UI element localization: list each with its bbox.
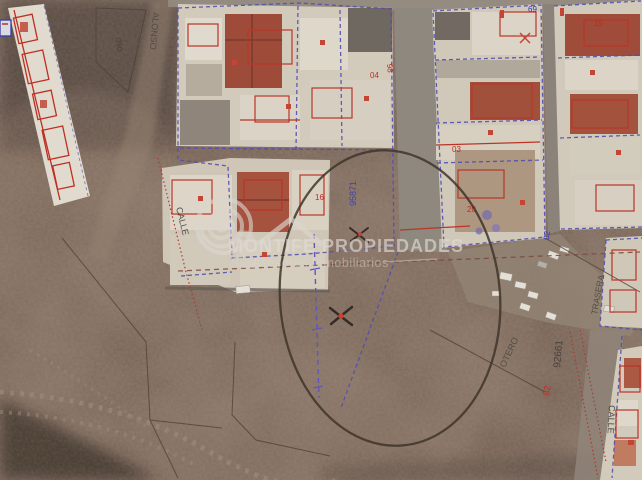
photo-wash [0,0,642,480]
aerial-map-photo: CALLE CALLE ALONSO OTERO TRASERA 95871 9… [0,0,642,480]
